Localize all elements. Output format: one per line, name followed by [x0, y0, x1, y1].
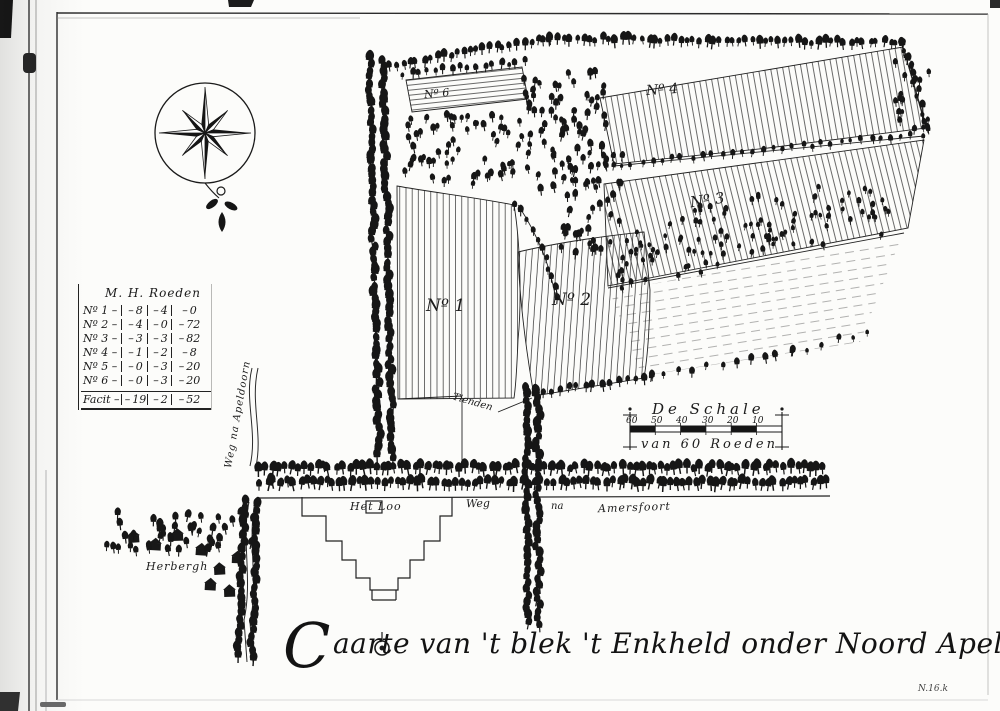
scanned-map-page: M. H. Roeden Nº 1 8 4 0 Nº 2 4 0 72 Nº 3…	[0, 0, 1000, 711]
scale-tick: 30	[702, 416, 713, 426]
table-header: M. H. Roeden	[81, 286, 211, 303]
scale-tick: 40	[676, 416, 687, 426]
area-measurement-table: M. H. Roeden Nº 1 8 4 0 Nº 2 4 0 72 Nº 3…	[78, 284, 212, 410]
label-na: na	[551, 501, 563, 512]
scale-tick: 60	[626, 416, 637, 426]
corner-mark: N.16.k	[918, 684, 948, 694]
field-plots	[397, 47, 926, 399]
table-total-row: Facit 19 2 52	[81, 391, 211, 410]
map-title: Caarte van 't blek 't Enkheld onder Noor…	[283, 618, 1000, 674]
plot-label-no2: Nº 2	[552, 290, 591, 310]
plot-no1-area	[397, 186, 520, 399]
title-text: aarte van 't blek 't Enkheld onder Noord…	[333, 627, 1000, 660]
table-row: Nº 4 1 2 8	[81, 345, 211, 359]
plot-label-no4: Nº 4	[645, 81, 678, 99]
scale-tick: 10	[752, 416, 763, 426]
table-row: Nº 2 4 0 72	[81, 317, 211, 331]
scale-tick: 50	[651, 416, 662, 426]
plot-label-no6: Nº 6	[423, 86, 449, 101]
label-herbergh: Herbergh	[146, 560, 208, 573]
scale-bar-subtitle: van 60 Roeden	[641, 437, 778, 452]
scale-tick: 20	[727, 416, 738, 426]
label-het-loo: Het Loo	[350, 500, 402, 513]
table-row: Nº 1 8 4 0	[81, 303, 211, 317]
table-row: Nº 3 3 3 82	[81, 331, 211, 345]
table-row: Nº 6 0 3 20	[81, 373, 211, 387]
table-row: Nº 5 0 3 20	[81, 359, 211, 373]
plot-label-no1: Nº 1	[426, 296, 465, 316]
compass-rose-icon	[155, 83, 255, 232]
label-weg: Weg	[466, 497, 490, 511]
label-amersfoort: Amersfoort	[598, 500, 671, 516]
title-initial: C	[283, 609, 331, 682]
